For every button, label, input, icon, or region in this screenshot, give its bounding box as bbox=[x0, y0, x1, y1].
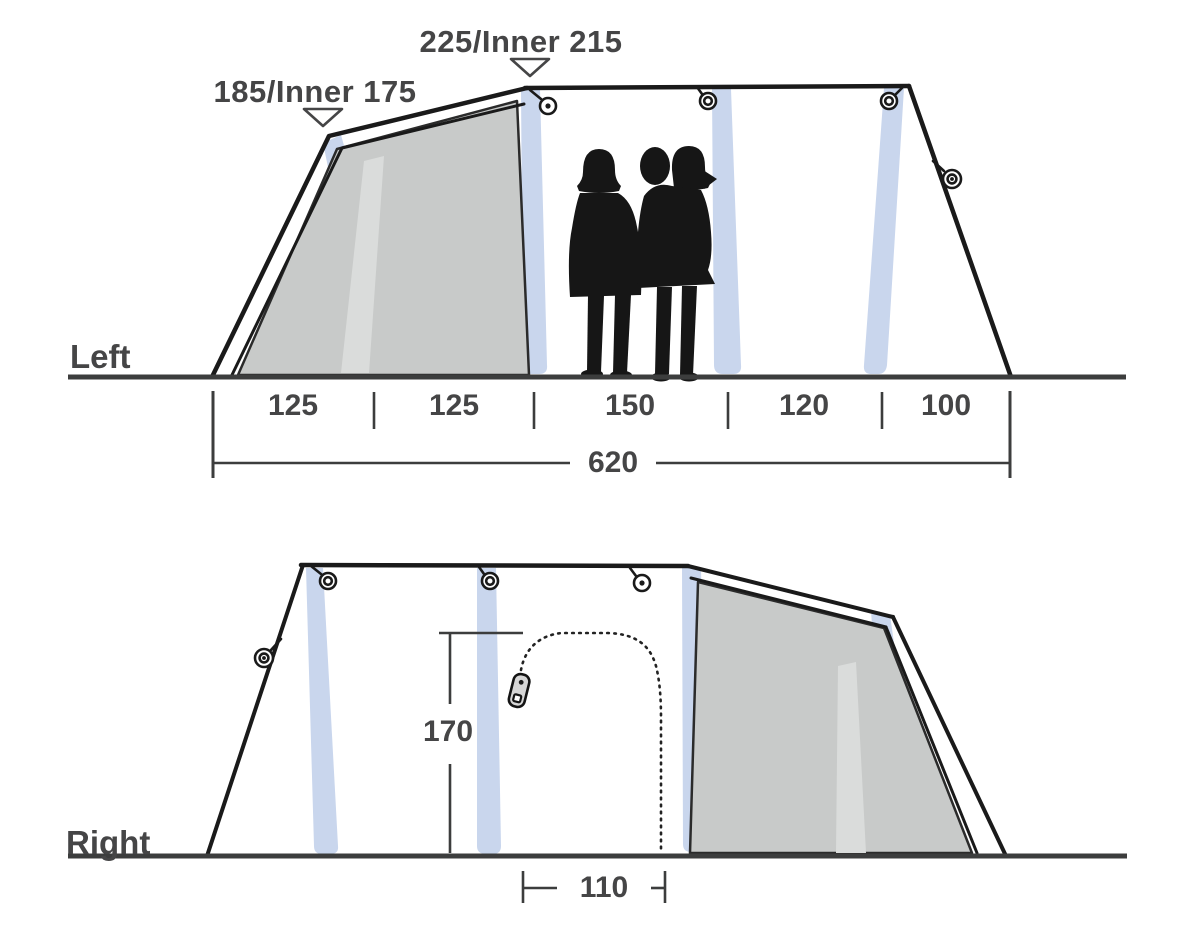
door-zipper-line bbox=[521, 633, 661, 852]
right-view-label: Right bbox=[66, 826, 150, 859]
guyline-ring-icon bbox=[255, 639, 281, 667]
tent-roof-line bbox=[301, 565, 688, 566]
tent-roof-line bbox=[525, 86, 909, 88]
air-beam-icon bbox=[712, 89, 741, 374]
side-panel bbox=[690, 582, 972, 853]
total-length-label: 620 bbox=[548, 448, 678, 478]
front-height-label: 185/Inner 175 bbox=[165, 76, 465, 107]
guyline-ring-icon bbox=[933, 161, 961, 188]
air-beam-icon bbox=[306, 568, 338, 854]
triangle-marker-icon bbox=[511, 59, 549, 76]
right-view-drawing bbox=[68, 565, 1127, 903]
left-view-label: Left bbox=[70, 340, 131, 373]
tent-outline bbox=[207, 565, 303, 856]
segment-length-label: 125 bbox=[228, 391, 358, 421]
guyline-ring-icon bbox=[630, 568, 650, 591]
tent-dimension-diagram: 225/Inner 215 185/Inner 175 Left Right 1… bbox=[0, 0, 1200, 927]
air-beam-icon bbox=[864, 88, 904, 374]
segment-length-label: 120 bbox=[739, 391, 869, 421]
tent-outline bbox=[909, 86, 1011, 377]
air-beam-icon bbox=[477, 568, 501, 854]
door-height-label: 170 bbox=[383, 717, 513, 747]
door-width-label: 110 bbox=[539, 873, 669, 903]
door-dimension-lines bbox=[439, 633, 665, 903]
family-silhouette bbox=[569, 146, 717, 382]
segment-length-label: 125 bbox=[389, 391, 519, 421]
segment-length-label: 150 bbox=[565, 391, 695, 421]
triangle-marker-icon bbox=[304, 109, 342, 126]
segment-length-label: 100 bbox=[881, 391, 1011, 421]
zipper-pull-icon bbox=[507, 673, 531, 709]
peak-height-label: 225/Inner 215 bbox=[371, 26, 671, 57]
